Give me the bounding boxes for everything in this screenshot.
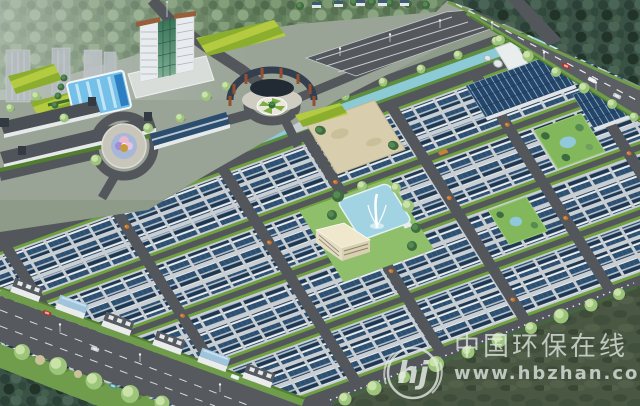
roundabout (257, 97, 287, 115)
fountain-plaza (102, 124, 146, 168)
gold-sculpture (120, 144, 128, 152)
scene-illustration (0, 0, 640, 406)
aerial-render: hj ® 中国环保在线 www.hbzhan.com (0, 0, 640, 406)
